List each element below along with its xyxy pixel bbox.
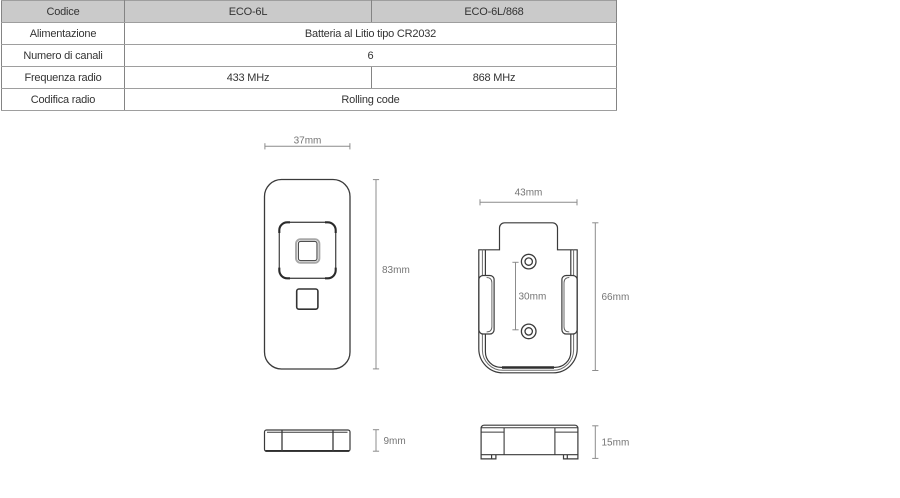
svg-text:37mm: 37mm <box>294 136 322 147</box>
svg-text:15mm: 15mm <box>602 438 630 449</box>
svg-text:9mm: 9mm <box>384 436 406 447</box>
svg-text:43mm: 43mm <box>515 188 543 199</box>
svg-text:66mm: 66mm <box>602 292 630 303</box>
svg-text:30mm: 30mm <box>519 292 547 303</box>
svg-text:83mm: 83mm <box>382 265 410 276</box>
